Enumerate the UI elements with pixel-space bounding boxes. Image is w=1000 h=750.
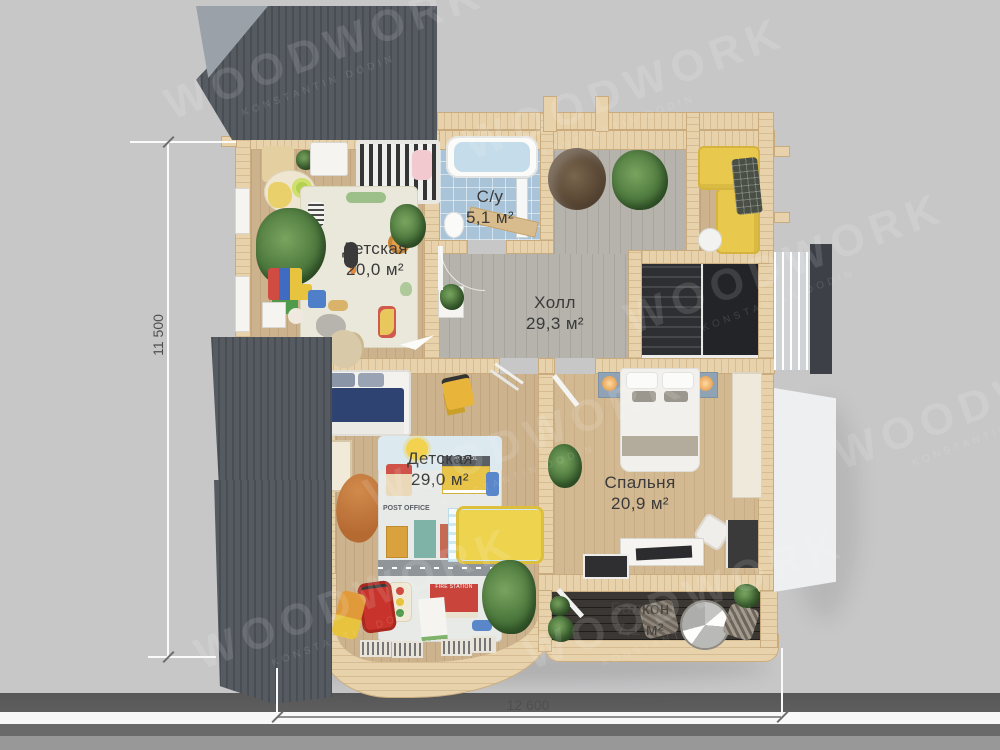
room-area: 29,0 м²	[411, 470, 469, 489]
room-area: 5,1 м²	[466, 208, 514, 227]
pink-pillow	[412, 150, 432, 180]
floor-hatch-glass	[585, 556, 627, 577]
floor-grille-4	[474, 638, 494, 651]
backdrop-band-mid	[0, 724, 1000, 736]
side-table-round	[698, 228, 722, 252]
dim-ext-bottom-end	[781, 648, 783, 718]
mat-tree-2	[400, 282, 412, 296]
room-name: Детская	[407, 449, 473, 468]
wall-bathroom-bottom-right	[506, 240, 554, 254]
pouf	[288, 308, 304, 324]
topiary-left-small	[550, 596, 570, 616]
traffic-green	[396, 609, 404, 617]
dim-label-width: 12 600	[468, 697, 588, 713]
room-name: Балкон	[610, 599, 669, 618]
dim-line-vertical	[167, 142, 169, 658]
palm-plant-nursery-bottom	[482, 560, 536, 634]
stair-landing	[704, 264, 758, 358]
log-end-right-2	[774, 212, 790, 223]
mat-giraffe	[378, 306, 396, 338]
bed-throw	[622, 436, 698, 456]
topiary-left-large	[548, 616, 574, 642]
traffic-yellow	[396, 598, 404, 606]
log-end-right-1	[774, 146, 790, 157]
kids-bed-duvet	[330, 388, 404, 426]
room-name: Детская	[342, 239, 408, 258]
void-railing	[774, 252, 810, 370]
bed-pillow-left	[626, 372, 658, 389]
hall-plant-large	[612, 150, 668, 210]
floor-grille-2	[394, 643, 421, 656]
bathtub-water	[454, 142, 530, 172]
floor-grille-1	[362, 642, 389, 655]
toy-easel	[262, 302, 286, 328]
mat-crocodile	[346, 192, 386, 203]
wall-right-top	[758, 112, 774, 372]
dim-ext-top-left	[130, 141, 236, 143]
mat-building-2	[414, 520, 436, 558]
bed-pillow-right	[662, 372, 694, 389]
log-end-top-1	[543, 96, 557, 132]
traffic-red	[396, 587, 404, 595]
stair-rail-bottom	[642, 355, 758, 358]
toy-bin-blue	[308, 290, 326, 308]
stair-treads	[642, 264, 702, 358]
void-dark-edge	[810, 244, 832, 374]
toddler-bed-yellow	[456, 506, 544, 564]
hanging-egg-chair	[548, 148, 606, 210]
topiary-right	[734, 584, 760, 608]
room-name: Спальня	[604, 473, 675, 492]
mat-fire-station-text: FIRE STATION	[430, 584, 478, 590]
window-sill-left-1	[235, 188, 250, 234]
mat-building-1	[386, 526, 408, 558]
room-area: 7,1 м²	[616, 620, 664, 639]
backdrop-band-light	[0, 736, 1000, 750]
kids-bed-pillow-2	[358, 373, 384, 387]
kids-bed-pillow-1	[329, 373, 355, 387]
window-sill-left-2	[235, 276, 250, 332]
wall-middle-b	[538, 358, 555, 374]
backdrop-band-white	[0, 712, 1000, 724]
wall-stairs-left	[628, 250, 642, 372]
floor-plan-canvas: SCHOOL POST OFFICE FIRE STATION	[0, 0, 1000, 750]
bed-cushion-right	[664, 391, 688, 402]
room-area: 29,3 м²	[526, 314, 584, 333]
lamp-left	[602, 376, 617, 391]
kids-bed-sheet	[330, 422, 404, 434]
hall-plant-small	[440, 284, 464, 310]
log-end-top-2	[595, 96, 609, 132]
mat-leopard	[328, 300, 348, 311]
bed-cushion-left	[632, 391, 656, 402]
teddy-bear	[328, 330, 362, 368]
bedroom-wardrobe	[732, 372, 762, 498]
lower-roof-white	[774, 388, 836, 592]
dim-line-horizontal	[277, 716, 782, 718]
room-area: 20,0 м²	[346, 260, 404, 279]
dim-ext-bottom-start	[276, 668, 278, 718]
room-name: С/у	[477, 187, 504, 206]
changing-table	[310, 142, 348, 176]
room-name: Холл	[534, 293, 576, 312]
roof-left-middle	[206, 337, 332, 480]
stair-rail-center	[701, 264, 703, 358]
room-label-hall: Холл 29,3 м²	[490, 292, 620, 334]
dim-ext-bottom-left	[148, 656, 216, 658]
room-label-nursery-bottom: Детская 29,0 м²	[370, 448, 510, 490]
baby-gym-blanket	[268, 182, 292, 208]
kids-drawing-board	[418, 597, 448, 641]
floor-grille-3	[443, 641, 470, 654]
bedroom-dresser-dark	[726, 520, 758, 568]
room-label-balcony: Балкон 7,1 м²	[575, 598, 705, 640]
roof-left-bottom	[214, 480, 332, 704]
lamp-right	[698, 376, 713, 391]
room-label-bathroom: С/у 5,1 м²	[440, 186, 540, 228]
room-label-bedroom: Спальня 20,9 м²	[570, 472, 710, 514]
room-area: 20,9 м²	[611, 494, 669, 513]
wall-left	[235, 130, 251, 372]
wall-balcony-right	[760, 590, 778, 648]
room-label-nursery-top: Детская 20,0 м²	[305, 238, 445, 280]
dim-label-height: 11 500	[128, 305, 188, 365]
